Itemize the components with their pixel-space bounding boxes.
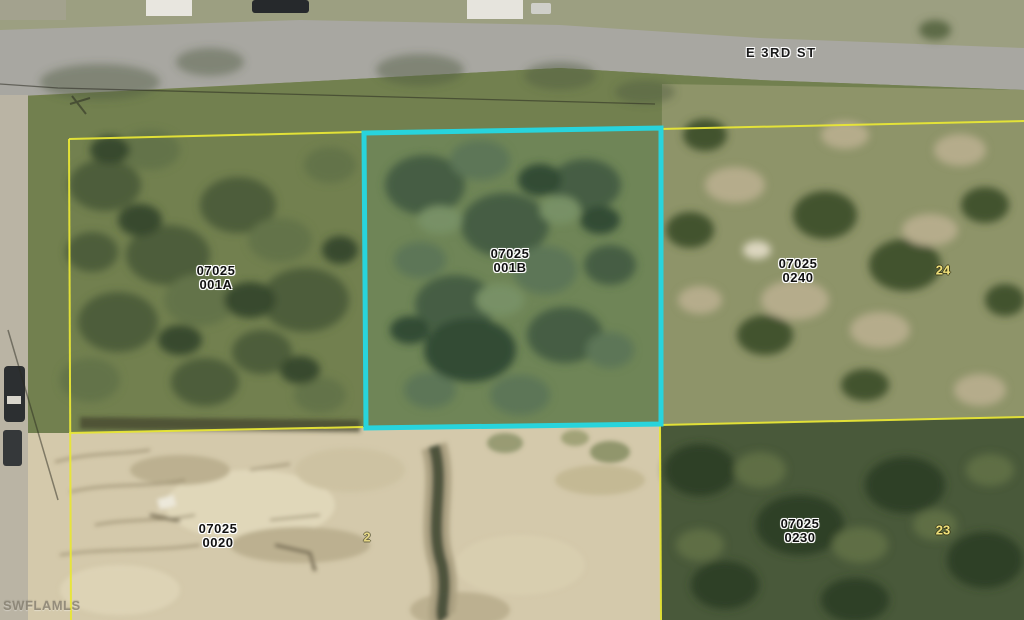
aerial-parcel-map: E 3RD ST 07025 001A 07025 001B 07025 024… (0, 0, 1024, 620)
highlighted-parcel-boundary (364, 128, 661, 428)
parcel-label-001B: 07025 001B (491, 247, 530, 275)
parcel-id-line: 07025 (491, 246, 530, 261)
lot-number-23: 23 (936, 523, 950, 538)
parked-vehicle (3, 430, 22, 466)
aerial-imagery (0, 0, 1024, 620)
parcel-label-0230: 07025 0230 (781, 517, 820, 545)
parcel-suffix-line: 0240 (783, 270, 814, 285)
lot-number-2: 2 (363, 530, 370, 545)
parked-vehicle (252, 0, 309, 13)
parcel-suffix-line: 0020 (203, 535, 234, 550)
lot-number-24: 24 (936, 263, 950, 278)
parcel-suffix-line: 0230 (785, 530, 816, 545)
parked-truck (4, 366, 25, 422)
parked-vehicle (531, 3, 551, 14)
driveway (146, 0, 192, 16)
parcel-id-line: 07025 (781, 516, 820, 531)
parcel-suffix-line: 001B (493, 260, 526, 275)
parcel-label-0020: 07025 0020 (199, 522, 238, 550)
parcel-suffix-line: 001A (199, 277, 232, 292)
side-street (0, 95, 28, 620)
mls-watermark: SWFLAMLS (3, 598, 81, 613)
parcel-id-line: 07025 (779, 256, 818, 271)
parcel-id-line: 07025 (199, 521, 238, 536)
truck-cab-roof (7, 396, 21, 404)
parcel-label-001A: 07025 001A (197, 264, 236, 292)
parcel-line (660, 425, 661, 620)
parcel-label-0240: 07025 0240 (779, 257, 818, 285)
house-roof-corner (0, 0, 66, 20)
street-label: E 3RD ST (746, 45, 817, 60)
driveway (467, 0, 523, 19)
parcel-id-line: 07025 (197, 263, 236, 278)
side-street-vehicles (3, 366, 25, 466)
